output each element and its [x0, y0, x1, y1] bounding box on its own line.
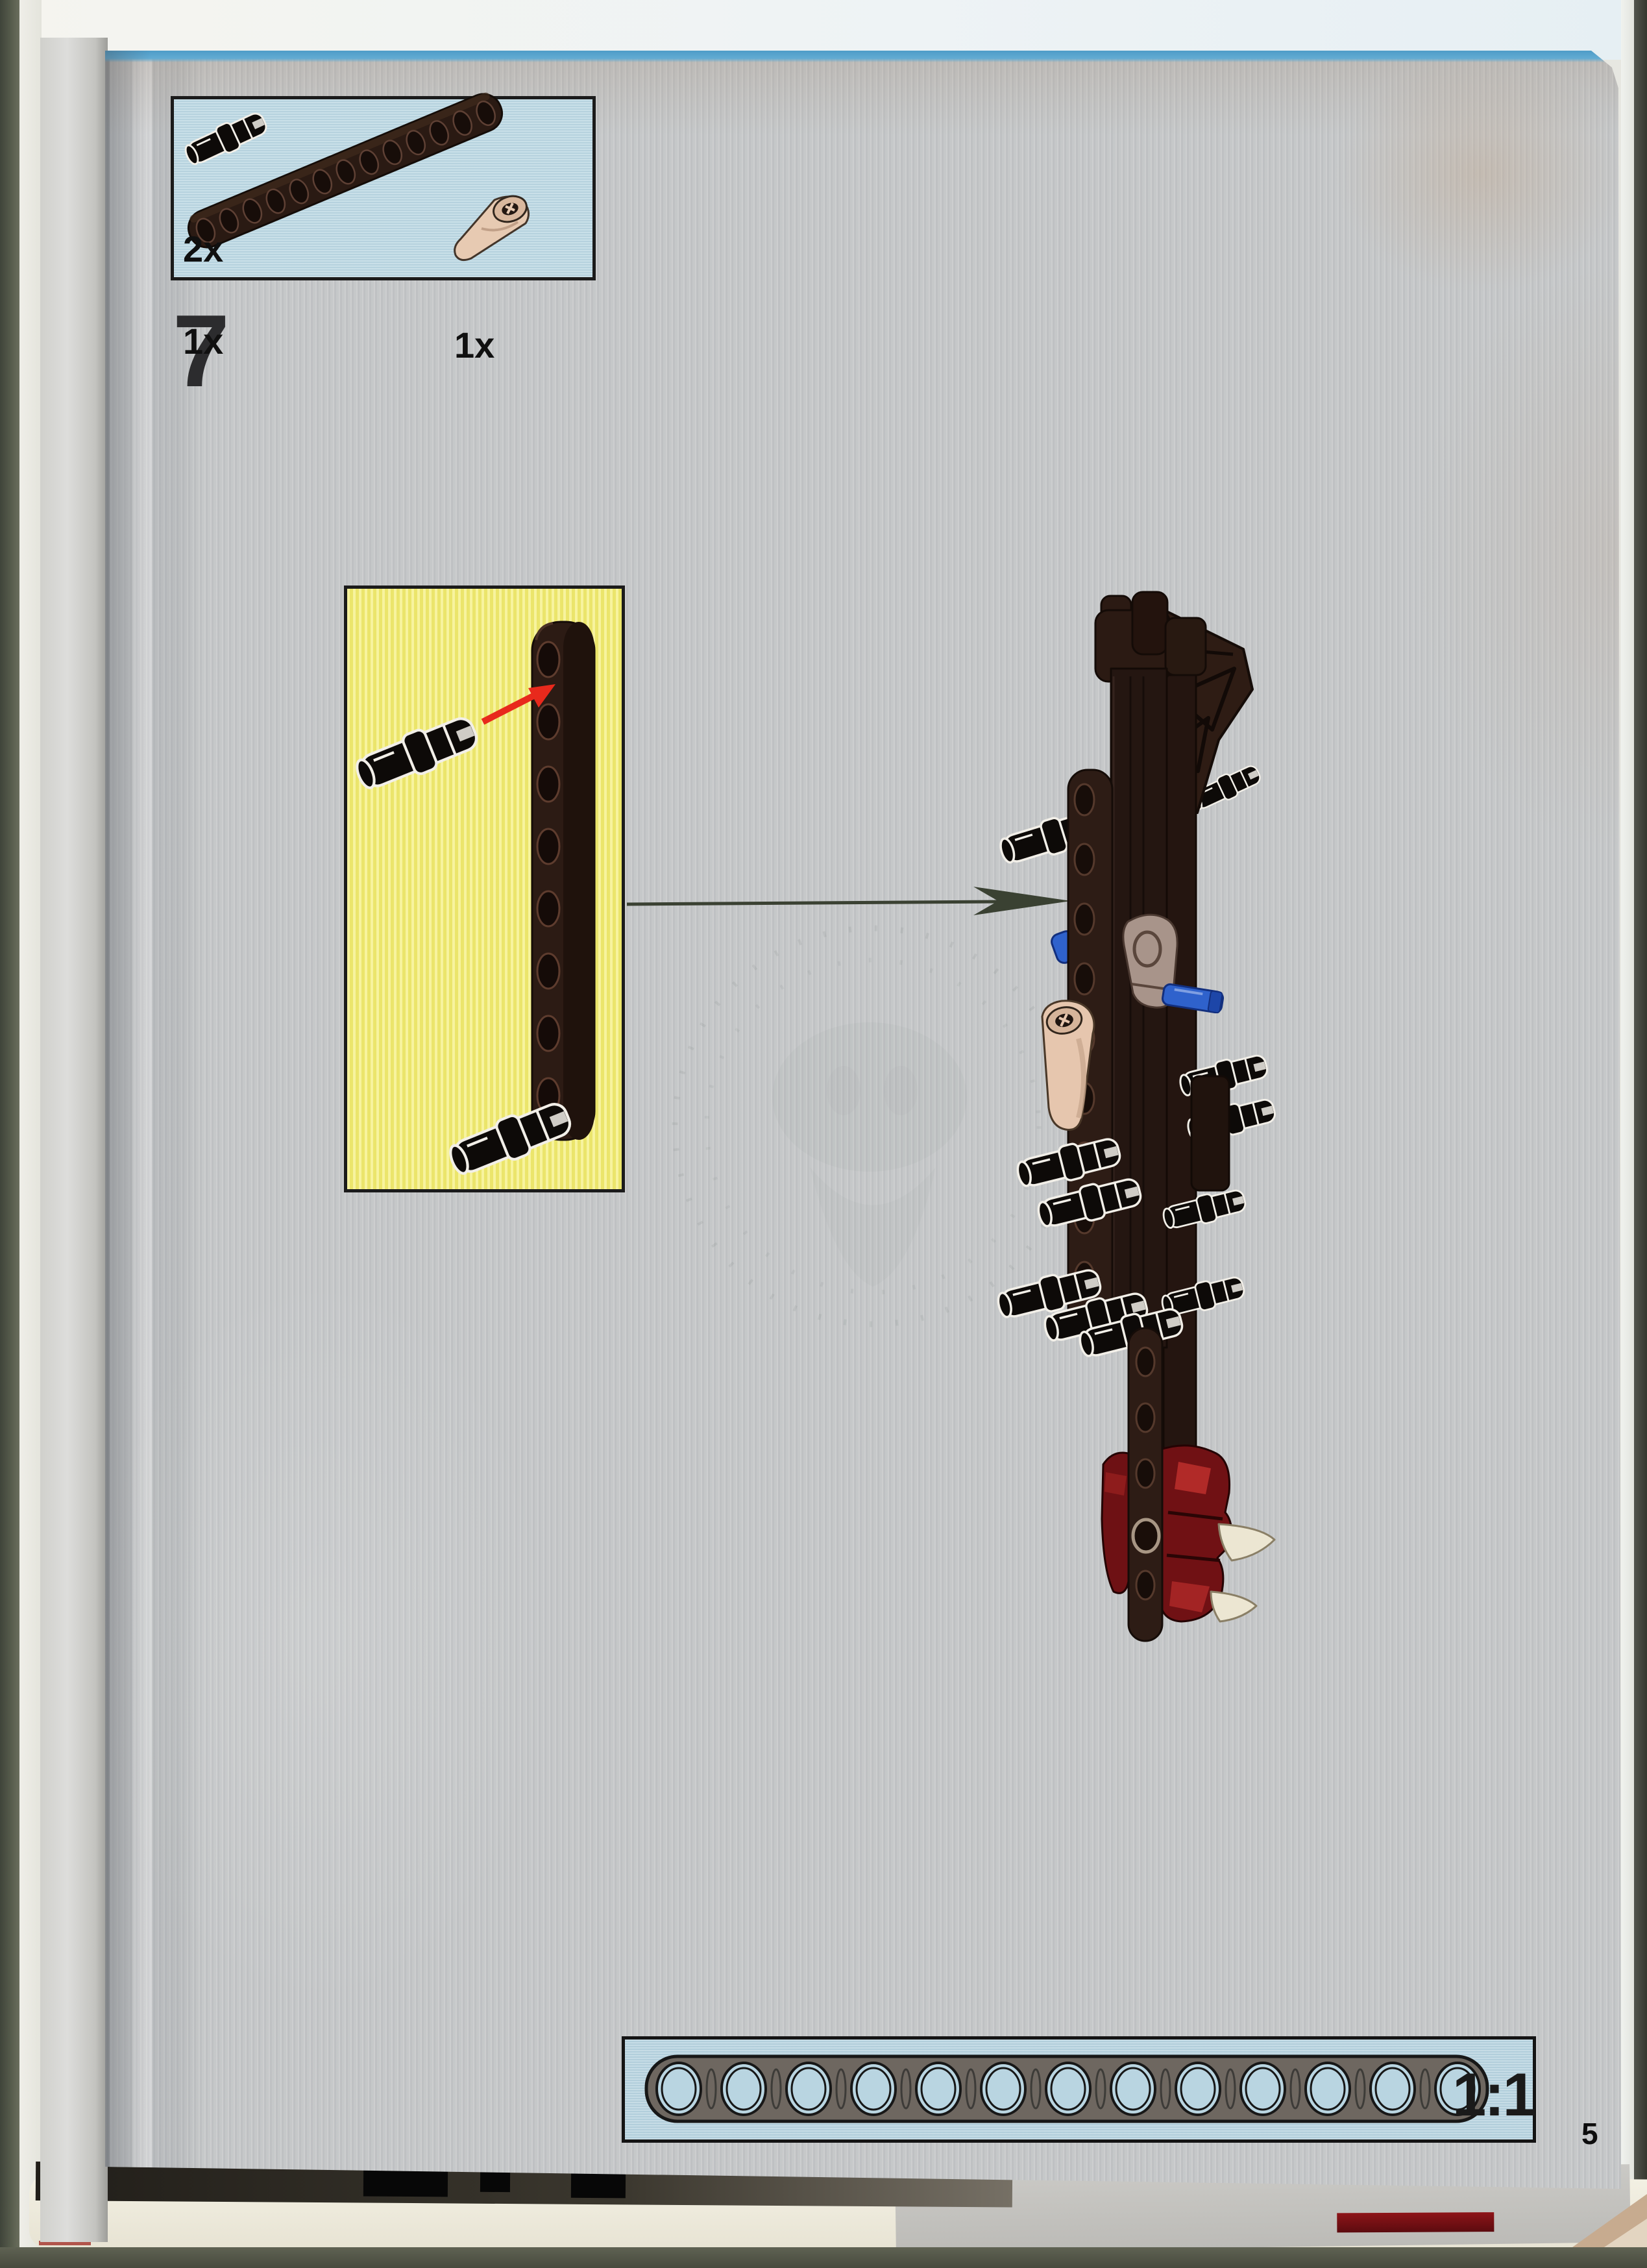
scanner-left-edge [0, 0, 19, 2268]
part-count-beam: 1x [183, 323, 223, 360]
substep-callout-box [344, 585, 625, 1192]
page-fold-shadow [105, 51, 151, 2167]
scanned-instruction-page: 7 2x 1x 1x 1:1 5 [0, 0, 1647, 2268]
part-count-cone: 1x [454, 327, 494, 364]
booklet-page [105, 51, 1630, 2191]
print-blob [363, 2168, 448, 2197]
underlying-page-red-strip [1337, 2212, 1494, 2232]
scanner-bottom-edge [0, 2247, 1647, 2268]
scale-label: 1:1 [1452, 2064, 1535, 2125]
scanner-right-edge [1634, 0, 1647, 2268]
parts-callout-box [171, 96, 596, 280]
previous-page-edge [40, 38, 108, 2242]
page-number: 5 [1581, 2119, 1598, 2149]
print-blob [480, 2170, 510, 2192]
scale-1to1-box [622, 2036, 1536, 2143]
part-count-pin: 2x [183, 231, 223, 267]
scanner-left-margin [19, 0, 42, 2268]
